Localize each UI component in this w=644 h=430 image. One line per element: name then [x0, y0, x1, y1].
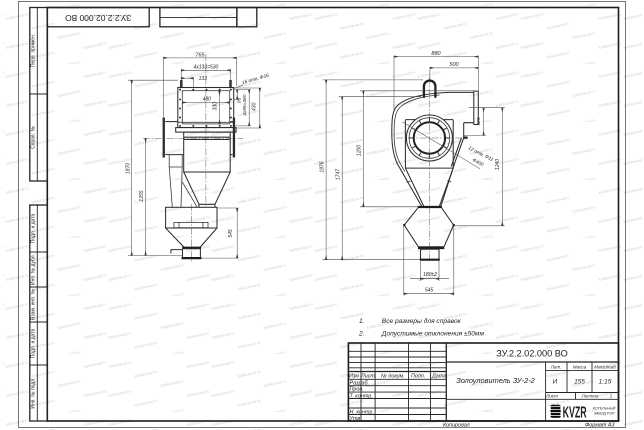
svg-text:Лист: Лист: [545, 394, 558, 399]
svg-text:2.: 2.: [358, 330, 365, 337]
svg-text:325: 325: [476, 117, 482, 125]
svg-text:Золоуловитель ЗУ-2-2: Золоуловитель ЗУ-2-2: [456, 376, 535, 385]
svg-text:1:15: 1:15: [599, 379, 612, 386]
svg-text:Взам. инв. №: Взам. инв. №: [31, 289, 37, 320]
svg-text:КОТЕЛЬНЫЙ: КОТЕЛЬНЫЙ: [593, 407, 616, 411]
svg-text:155: 155: [574, 379, 585, 386]
svg-text:330: 330: [212, 102, 218, 111]
svg-text:Инв. № подл.: Инв. № подл.: [31, 377, 37, 408]
svg-text:Изм: Изм: [349, 374, 359, 380]
svg-text:Подп. и дата: Подп. и дата: [31, 214, 37, 244]
svg-text:Разраб.: Разраб.: [350, 380, 370, 386]
svg-text:430: 430: [252, 102, 258, 111]
svg-text:ЗАВОД РЭП: ЗАВОД РЭП: [594, 412, 615, 416]
svg-text:Дата: Дата: [431, 374, 446, 380]
svg-text:Утв.: Утв.: [349, 416, 362, 422]
svg-text:Подп.: Подп.: [411, 374, 425, 380]
svg-text:Лит.: Лит.: [550, 364, 562, 369]
svg-text:880: 880: [431, 51, 441, 57]
svg-text:ЗУ.2.2.02.000 ВО: ЗУ.2.2.02.000 ВО: [496, 348, 568, 358]
svg-text:Лист: Лист: [360, 374, 375, 380]
svg-text:Пров.: Пров.: [350, 387, 364, 393]
svg-text:1747: 1747: [335, 169, 341, 180]
svg-text:545: 545: [228, 229, 234, 238]
svg-text:№ докум.: № докум.: [381, 374, 405, 380]
svg-text:1870: 1870: [125, 163, 131, 174]
svg-text:480: 480: [203, 96, 212, 102]
svg-text:545: 545: [425, 288, 434, 294]
svg-text:765: 765: [195, 52, 205, 58]
svg-text:Листов: Листов: [581, 394, 599, 399]
svg-text:Формат А3: Формат А3: [585, 422, 615, 428]
svg-text:Масштаб: Масштаб: [594, 364, 616, 369]
svg-text:500: 500: [449, 62, 459, 68]
svg-text:Все размеры для справок: Все размеры для справок: [382, 317, 462, 325]
svg-text:Инв. № дубл.: Инв. № дубл.: [31, 254, 37, 285]
svg-text:Допустимые отклонения ±50мм: Допустимые отклонения ±50мм: [381, 330, 485, 337]
svg-text:И: И: [553, 379, 558, 386]
svg-text:1255: 1255: [139, 190, 145, 201]
svg-text:Справ. №: Справ. №: [31, 126, 37, 149]
svg-text:1.: 1.: [359, 318, 365, 325]
svg-text:Т. контр.: Т. контр.: [350, 393, 373, 399]
svg-text:180±2: 180±2: [423, 272, 437, 278]
svg-text:ЗУ.2.2.02.000 ВО: ЗУ.2.2.02.000 ВО: [65, 13, 132, 23]
svg-text:1: 1: [610, 394, 613, 399]
svg-text:1876: 1876: [319, 161, 325, 172]
svg-text:Подп. и дата: Подп. и дата: [31, 329, 37, 359]
svg-text:Масса: Масса: [573, 364, 587, 369]
svg-text:Н. контр.: Н. контр.: [350, 409, 374, 415]
svg-text:1200: 1200: [357, 145, 363, 156]
svg-text:KVZR: KVZR: [563, 404, 587, 421]
svg-text:95: 95: [236, 97, 242, 103]
svg-text:4х133=530: 4х133=530: [193, 65, 218, 71]
svg-text:Перв. примен.: Перв. примен.: [31, 34, 37, 67]
svg-text:1240: 1240: [495, 159, 501, 170]
svg-text:Копировал: Копировал: [443, 422, 470, 428]
svg-text:133: 133: [199, 76, 208, 82]
svg-text:4х95=380: 4х95=380: [242, 94, 248, 116]
